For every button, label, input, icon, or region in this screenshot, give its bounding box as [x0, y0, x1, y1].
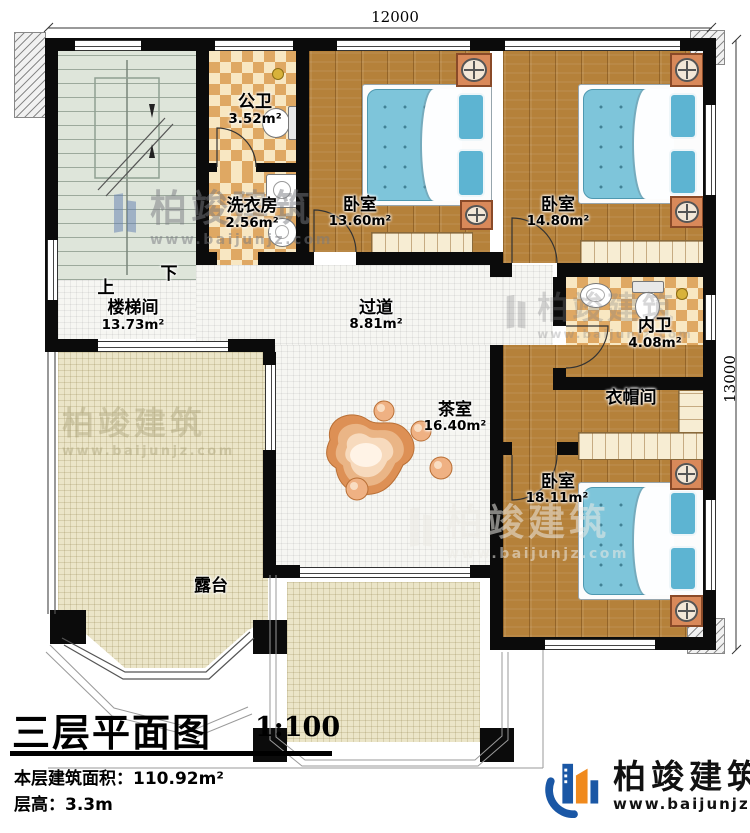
- wall: [356, 252, 490, 265]
- shower-head-icon: [272, 68, 284, 80]
- room-label-terrace: 露台: [180, 578, 242, 596]
- bed-pillow: [457, 149, 485, 197]
- company-website: www.baijunjz.com: [613, 795, 750, 813]
- lamp-icon: [461, 58, 487, 82]
- page-title: 三层平面图: [12, 702, 212, 757]
- sliding-door: [265, 365, 276, 450]
- room-label-stairwell: 楼梯间: [90, 300, 176, 318]
- company-name: 柏竣建筑: [613, 760, 750, 795]
- wall: [258, 252, 314, 265]
- window: [705, 105, 716, 195]
- nightstand-icon: [670, 458, 703, 490]
- stair-down-label: 下: [156, 266, 182, 284]
- hallway-extension-floor: [503, 265, 553, 345]
- sink-icon: [580, 283, 612, 308]
- company-logo-text: 柏竣建筑 www.baijunjz.com: [613, 760, 750, 813]
- wall: [470, 565, 503, 578]
- nightstand-icon: [460, 200, 493, 230]
- title-underline: [10, 751, 332, 756]
- bed-sheet: [634, 89, 674, 199]
- wardrobe-icon: [678, 390, 705, 434]
- room-terrace-floor: [58, 352, 268, 668]
- wardrobe-icon: [578, 432, 705, 460]
- room-label-inner-bath: 内卫: [622, 318, 688, 336]
- floor-height-text: 层高：3.3m: [14, 790, 113, 815]
- wall: [263, 352, 276, 365]
- room-label-cloakroom: 衣帽间: [585, 390, 677, 408]
- room-tea-room-floor: [263, 345, 490, 575]
- company-logo: 柏竣建筑 www.baijunjz.com: [543, 760, 750, 818]
- hatch-patch: [14, 32, 46, 118]
- window: [505, 40, 680, 51]
- bed-pillow: [457, 93, 485, 141]
- wall: [503, 442, 512, 455]
- bed-pillow: [669, 149, 697, 195]
- window: [545, 639, 655, 650]
- room-label-public-bath: 公卫: [213, 94, 297, 112]
- window: [705, 500, 716, 590]
- wall: [263, 565, 300, 578]
- terrace-column: [253, 620, 287, 654]
- wardrobe-icon: [580, 240, 705, 265]
- wall: [490, 345, 503, 650]
- sink-basin: [586, 288, 605, 302]
- stair-up-label: 上: [93, 280, 119, 298]
- wall: [45, 38, 58, 352]
- nightstand-icon: [670, 595, 703, 627]
- terrace-column: [480, 728, 514, 762]
- wardrobe-icon: [371, 232, 473, 254]
- shower-head-icon: [676, 288, 688, 300]
- wall: [553, 368, 566, 377]
- wall: [256, 163, 309, 172]
- wall: [196, 163, 217, 172]
- bed-pillow: [669, 491, 697, 536]
- room-stairwell-floor: [58, 51, 196, 280]
- wall: [228, 339, 275, 352]
- sliding-door: [300, 567, 470, 578]
- wall: [45, 339, 98, 352]
- room-area-laundry: 2.56m²: [210, 216, 294, 230]
- nightstand-icon: [670, 53, 704, 87]
- bed-pillow: [669, 546, 697, 591]
- window: [705, 295, 716, 340]
- room-label-laundry: 洗衣房: [206, 198, 298, 216]
- window: [47, 240, 58, 300]
- room-area-tea-room: 16.40m²: [410, 419, 500, 433]
- lamp-icon: [465, 205, 488, 225]
- room-area-bedroom-top-right: 14.80m²: [516, 214, 600, 228]
- dimension-top: 12000: [355, 8, 435, 26]
- lamp-icon: [675, 463, 698, 485]
- wall: [557, 263, 716, 277]
- sliding-door: [98, 341, 228, 352]
- wall: [503, 263, 512, 277]
- room-area-bedroom-bottom-right: 18.11m²: [515, 491, 599, 505]
- room-area-stairwell: 13.73m²: [92, 318, 174, 332]
- bed-pillow: [669, 93, 697, 139]
- bed-sheet: [634, 487, 674, 595]
- wall: [196, 252, 217, 265]
- window: [337, 40, 470, 51]
- window: [75, 40, 141, 51]
- wall: [296, 38, 309, 265]
- wall: [557, 442, 578, 455]
- bed-icon: [362, 84, 492, 206]
- room-area-inner-bath: 4.08m²: [616, 336, 694, 350]
- lamp-icon: [675, 58, 699, 82]
- terrace-column: [50, 610, 86, 644]
- bed-icon: [578, 84, 704, 204]
- lamp-icon: [675, 201, 699, 223]
- floor-plan: 12000 13000 公卫 3.52m² 洗衣房 2.56m² 卧室 13.6…: [0, 0, 750, 833]
- wall: [490, 252, 503, 277]
- floor-area-text: 本层建筑面积：110.92m²: [14, 764, 224, 789]
- company-logo-icon: [543, 760, 605, 818]
- toilet-icon: [632, 281, 662, 321]
- room-area-hallway: 8.81m²: [338, 317, 414, 331]
- wall: [263, 450, 276, 575]
- bed-sheet: [422, 89, 462, 201]
- lamp-icon: [675, 600, 698, 622]
- nightstand-icon: [456, 53, 492, 87]
- wall: [553, 277, 566, 326]
- nightstand-icon: [670, 196, 704, 228]
- dimension-right: 13000: [721, 349, 739, 409]
- room-area-bedroom-top-middle: 13.60m²: [318, 214, 402, 228]
- plan-scale: 1:100: [255, 712, 340, 743]
- wall: [196, 38, 209, 265]
- window: [215, 40, 293, 51]
- room-area-public-bath: 3.52m²: [213, 112, 297, 126]
